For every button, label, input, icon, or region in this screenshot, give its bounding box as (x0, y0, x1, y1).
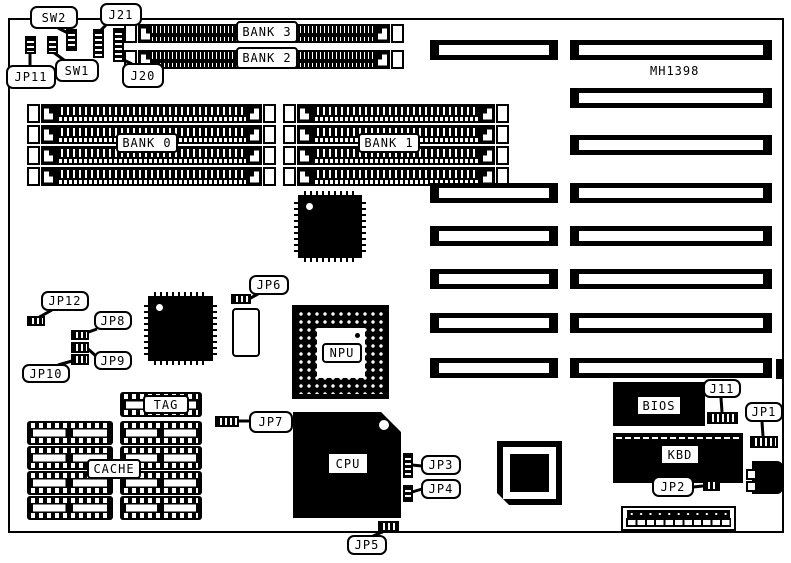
jumper-sw2 (66, 29, 77, 51)
kbd-label: KBD (662, 446, 698, 463)
jumper-j20 (113, 28, 124, 62)
jumper-j11 (707, 412, 738, 424)
callout-jp12: JP12 (41, 291, 89, 311)
callout-jp8: JP8 (94, 311, 132, 330)
bios-label-text: BIOS (643, 399, 676, 413)
callout-j20: J20 (122, 63, 164, 88)
jumper-jp6 (231, 294, 251, 304)
jumper-j21 (93, 29, 104, 58)
callout-jp2: JP2 (652, 476, 694, 497)
kbd-label-text: KBD (668, 448, 693, 462)
cpu-label-text: CPU (336, 457, 361, 471)
npu-label: NPU (322, 343, 362, 363)
bank2-label-text: BANK 2 (242, 51, 291, 65)
jumper-sw1 (47, 36, 58, 54)
bank0-label-text: BANK 0 (122, 136, 171, 150)
callout-sw2: SW2 (30, 6, 78, 29)
callout-jp6: JP6 (249, 275, 289, 295)
bank3-label: BANK 3 (236, 21, 298, 43)
tag-label-text: TAG (154, 398, 179, 412)
bank3-label-text: BANK 3 (242, 25, 291, 39)
callout-jp7: JP7 (249, 411, 293, 433)
callout-jp5: JP5 (347, 535, 387, 555)
bank1-label-text: BANK 1 (364, 136, 413, 150)
callout-jp1: JP1 (745, 402, 783, 422)
cpu-label: CPU (329, 454, 367, 473)
jumper-jp3 (403, 453, 413, 478)
jumper-jp12 (27, 316, 45, 326)
jumper-jp2 (703, 480, 720, 491)
bank0-label: BANK 0 (116, 133, 178, 153)
callout-jp4: JP4 (421, 479, 461, 499)
callout-sw1: SW1 (55, 59, 99, 82)
npu-label-text: NPU (330, 346, 355, 360)
callout-j11: J11 (703, 379, 741, 398)
motherboard-diagram: BANK 3 BANK 2 BANK 0 BANK 1 MH1398 (0, 0, 791, 563)
jumper-jp5 (378, 521, 399, 532)
cache-label-text: CACHE (93, 462, 134, 476)
callout-jp9: JP9 (94, 351, 132, 370)
callout-jp11: JP11 (6, 65, 56, 89)
jumper-jp7 (215, 416, 239, 427)
board-model-text: MH1398 (650, 64, 699, 78)
bank2-label: BANK 2 (236, 47, 298, 69)
jumper-jp1 (750, 436, 778, 448)
callout-jp10: JP10 (22, 364, 70, 383)
cache-label: CACHE (87, 459, 141, 479)
bank1-label: BANK 1 (358, 133, 420, 153)
callout-jp3: JP3 (421, 455, 461, 475)
jumper-jp9 (71, 342, 89, 353)
jumper-jp8 (71, 330, 89, 340)
bios-label: BIOS (638, 397, 680, 414)
jumper-jp4 (403, 485, 413, 502)
jumper-jp11 (25, 36, 36, 54)
jumper-jp10 (71, 354, 89, 365)
tag-label: TAG (143, 395, 189, 414)
callout-j21: J21 (100, 3, 142, 26)
